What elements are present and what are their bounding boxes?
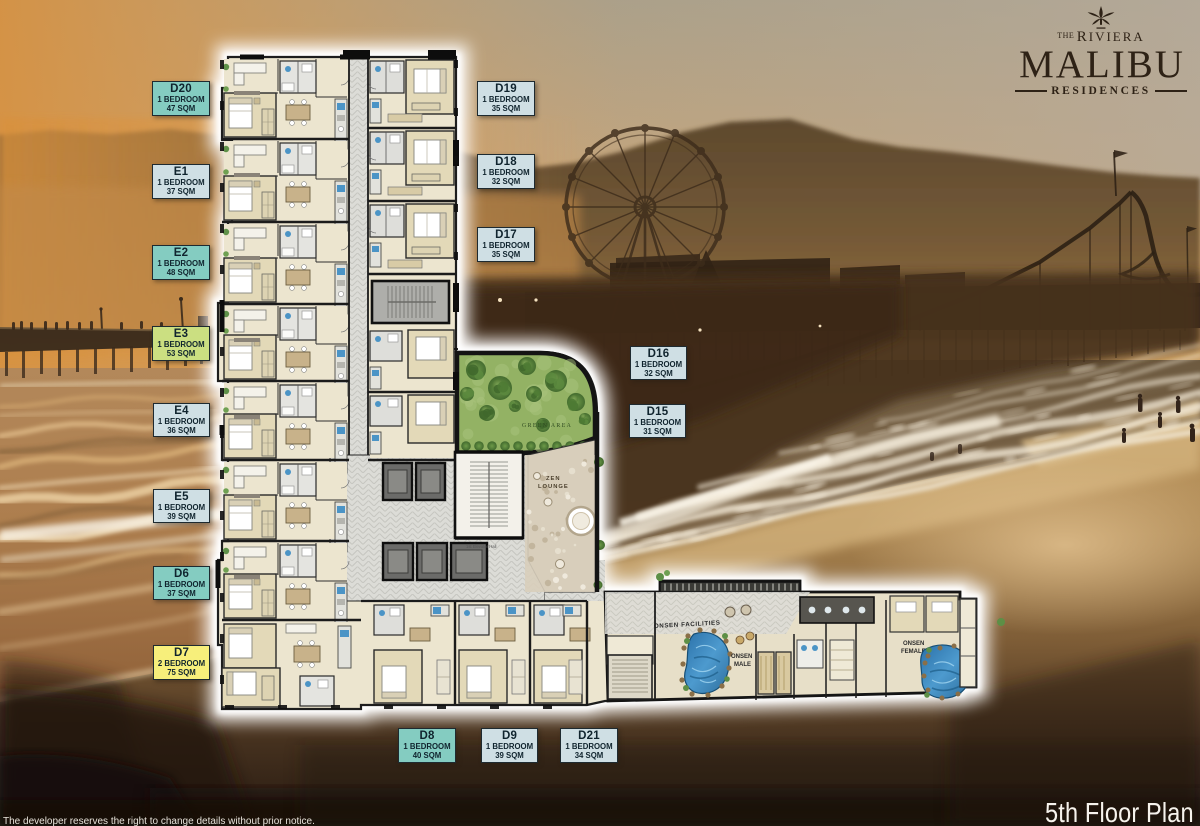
svg-text:MALE: MALE <box>734 662 751 668</box>
svg-text:ONSEN: ONSEN <box>903 641 924 647</box>
svg-text:ZEN: ZEN <box>546 476 561 482</box>
svg-text:LOUNGE: LOUNGE <box>538 484 569 490</box>
svg-text:ONSEN: ONSEN <box>731 654 752 660</box>
svg-text:1st Elevator Hall: 1st Elevator Hall <box>466 544 497 549</box>
svg-text:GREEN AREA: GREEN AREA <box>522 423 572 429</box>
